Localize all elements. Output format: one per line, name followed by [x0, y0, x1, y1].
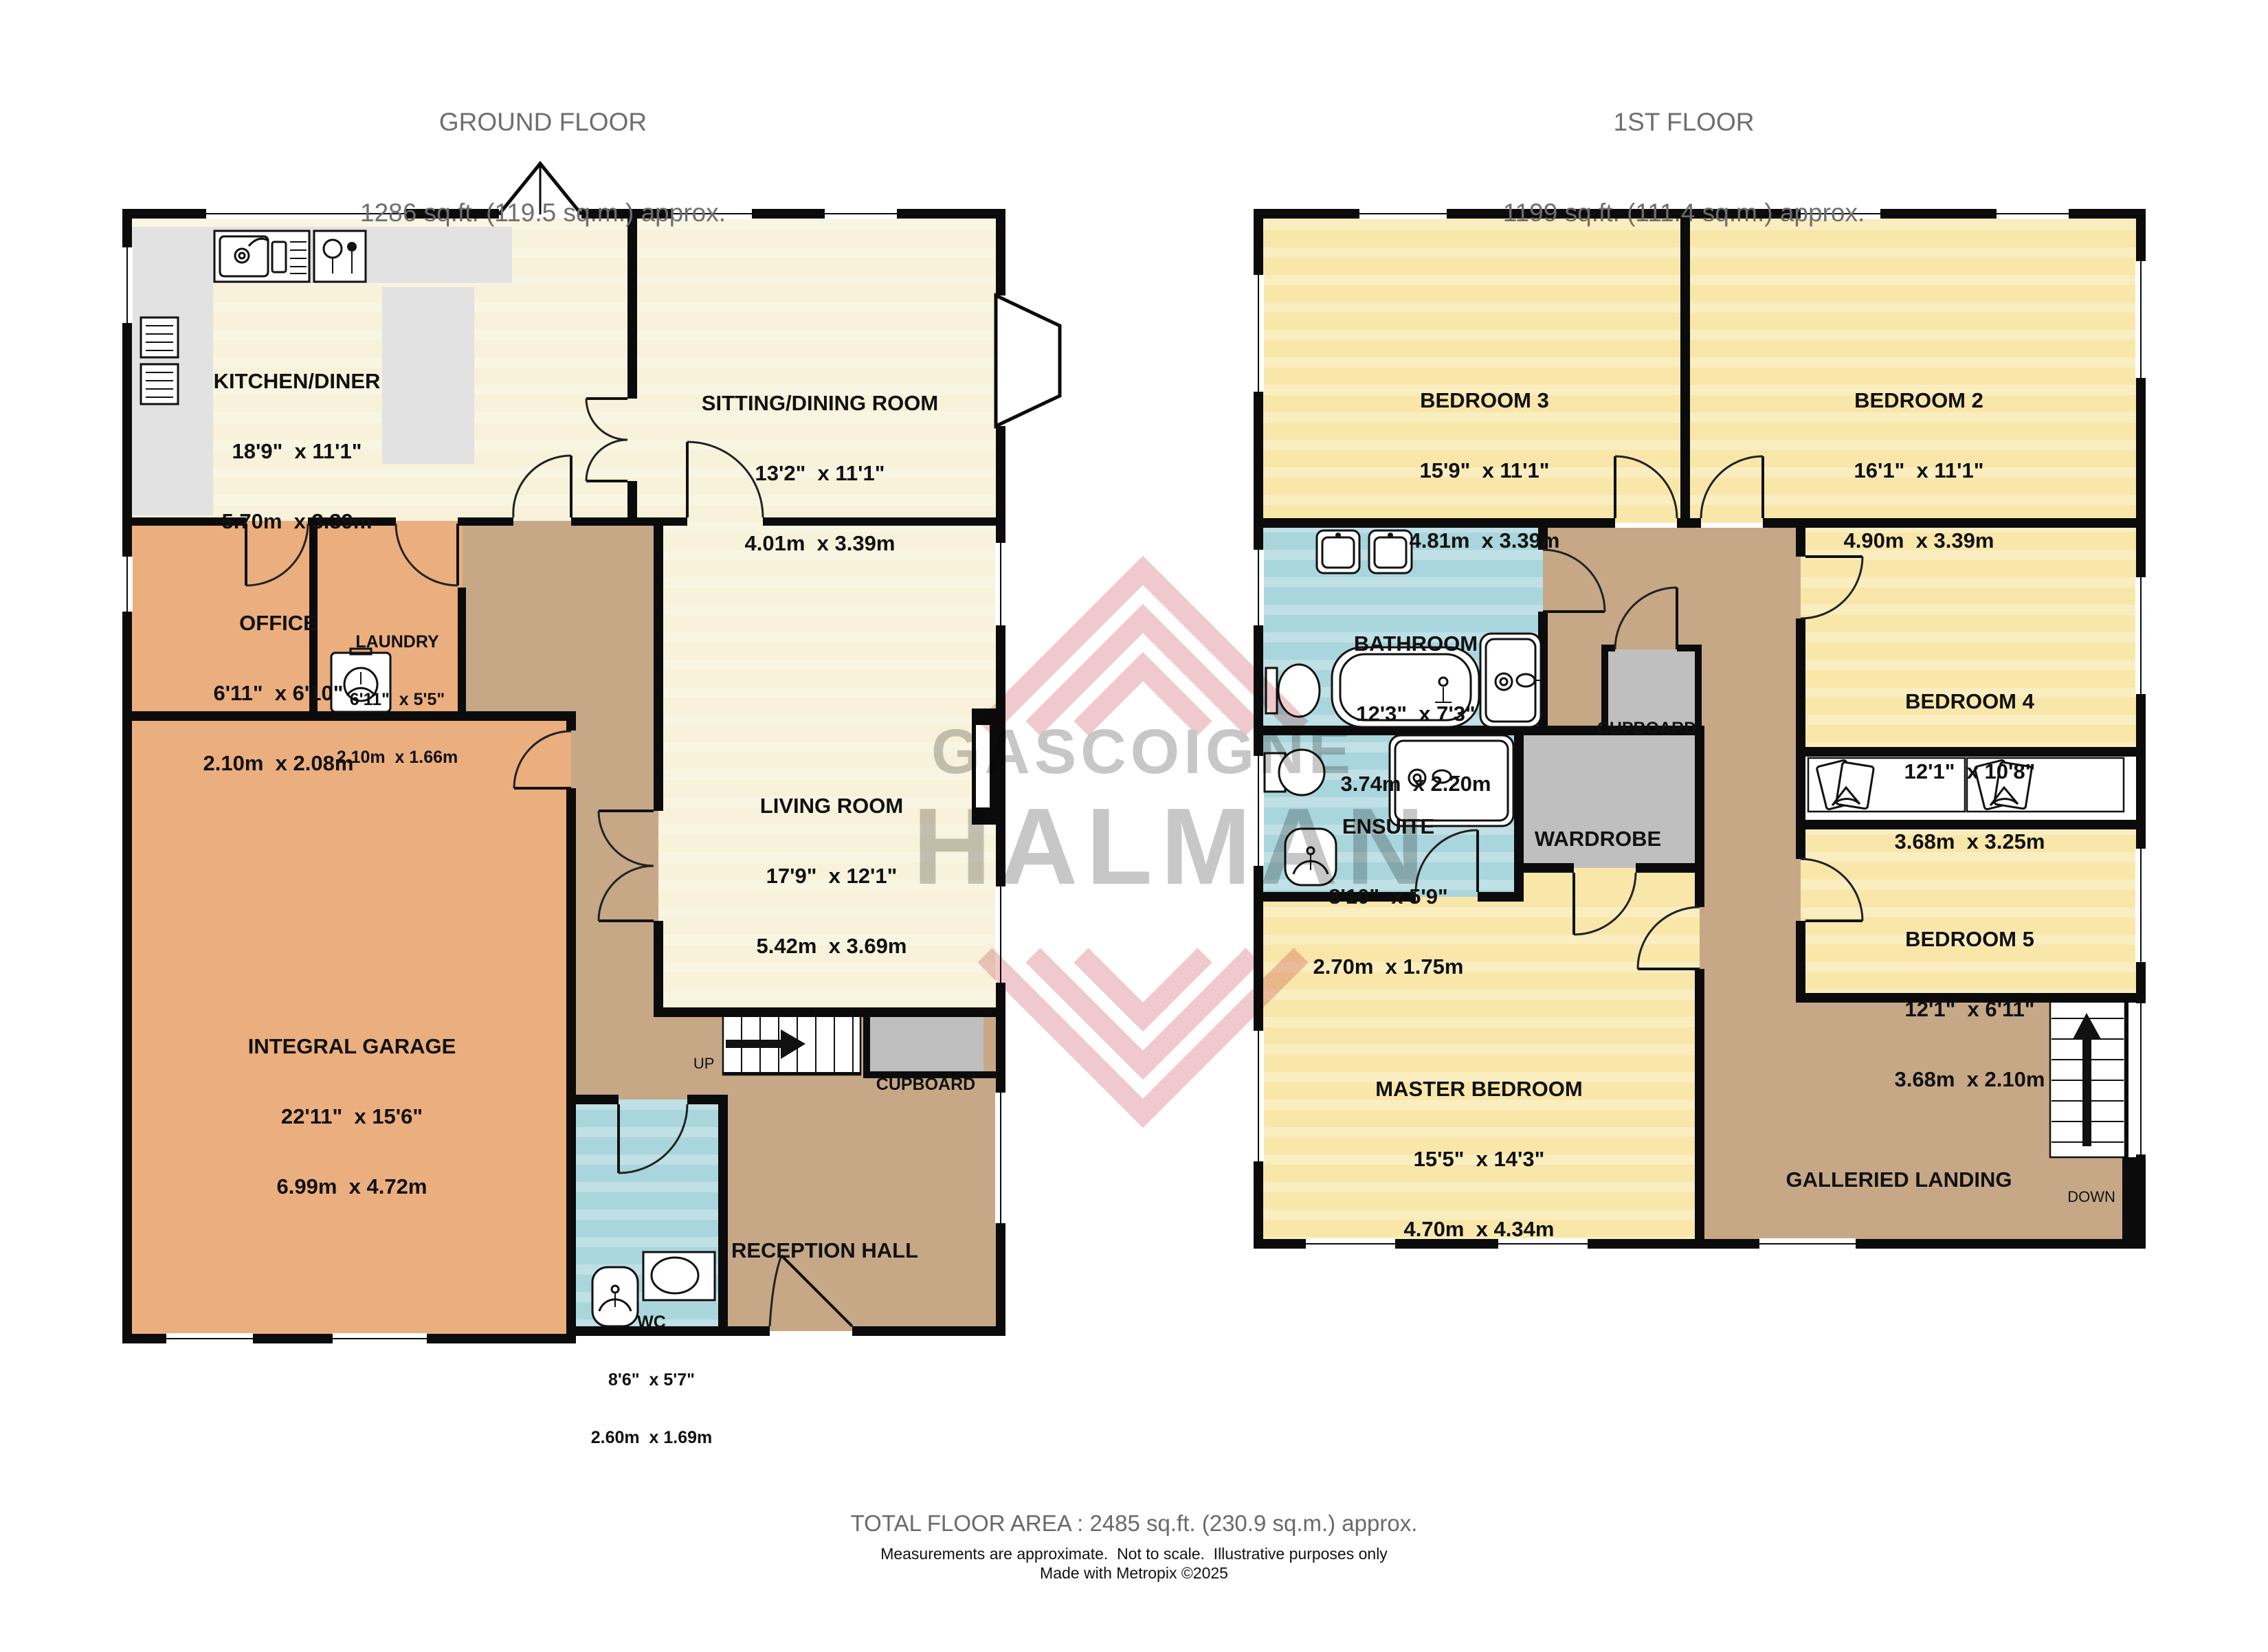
- room-name: BEDROOM 2: [1844, 389, 1994, 412]
- room-label-wardrobe: WARDROBE: [1535, 781, 1661, 874]
- room-dims-imperial: 12'3" x 7'3": [1341, 702, 1491, 726]
- room-dims-imperial: 12'1" x 10'8": [1895, 760, 2045, 783]
- bathroom-toilet-icon: [1266, 665, 1320, 717]
- room-dims-imperial: 15'5" x 14'3": [1375, 1148, 1582, 1171]
- room-label-bedroom-5: BEDROOM 5 12'1" x 6'11" 3.68m x 2.10m: [1895, 881, 2045, 1115]
- room-dims-metric: 2.60m x 1.69m: [591, 1428, 713, 1447]
- room-name: BEDROOM 5: [1895, 928, 2045, 951]
- room-dims-imperial: 22'11" x 15'6": [248, 1105, 456, 1128]
- desk-chair-icon: [1816, 760, 1874, 810]
- room-dims-metric: 4.70m x 4.34m: [1375, 1218, 1582, 1241]
- room-label-bedroom-3: BEDROOM 3 15'9" x 11'1" 4.81m x 3.39m: [1410, 342, 1560, 576]
- room-name: KITCHEN/DINER: [214, 370, 381, 393]
- room-dims-metric: 3.68m x 3.25m: [1895, 830, 2045, 853]
- room-name: BATHROOM: [1341, 632, 1491, 656]
- ground-floor-title: GROUND FLOOR: [360, 107, 726, 137]
- room-name: INTEGRAL GARAGE: [248, 1035, 456, 1058]
- up-text: UP: [693, 1055, 715, 1072]
- room-label-sitting-dining: SITTING/DINING ROOM 13'2" x 11'1" 4.01m …: [702, 345, 938, 579]
- disclaimer-note: Measurements are approximate. Not to sca…: [880, 1545, 1388, 1563]
- room-label-galleried-landing: GALLERIED LANDING: [1786, 1121, 2012, 1215]
- ground-floor-header: GROUND FLOOR 1286 sq.ft. (119.5 sq.m.) a…: [360, 47, 726, 258]
- room-dims-metric: 4.01m x 3.39m: [702, 532, 938, 555]
- room-name: BEDROOM 3: [1410, 389, 1560, 412]
- room-dims-metric: 3.68m x 2.10m: [1895, 1068, 2045, 1091]
- stairs-down-label: DOWN: [2059, 1172, 2115, 1205]
- room-name: MASTER BEDROOM: [1375, 1078, 1582, 1101]
- room-name: LIVING ROOM: [757, 794, 907, 818]
- room-dims-metric: 2.70m x 1.75m: [1313, 955, 1464, 979]
- room-label-cupboard-first: CUPBOARD: [1597, 680, 1696, 757]
- room-name: CUPBOARD: [1597, 719, 1696, 738]
- room-label-cupboard-ground: CUPBOARD: [876, 1036, 975, 1113]
- room-name: WARDROBE: [1535, 827, 1661, 851]
- first-floor-area: 1199 sq.ft. (111.4 sq.m.) approx.: [1503, 198, 1865, 228]
- bathroom-basin-icon: [1317, 531, 1359, 573]
- room-name: CUPBOARD: [876, 1075, 975, 1094]
- room-dims-metric: 5.42m x 3.69m: [757, 935, 907, 958]
- room-dims-metric: 2.10m x 2.08m: [203, 752, 354, 775]
- kitchen-island: [382, 287, 474, 464]
- stairs-up-label: UP: [685, 1039, 715, 1072]
- room-dims-metric: 4.90m x 3.39m: [1844, 529, 1994, 552]
- room-label-wc: WC 8'6" x 5'7" 2.60m x 1.69m: [591, 1274, 713, 1466]
- room-dims-imperial: 15'9" x 11'1": [1410, 459, 1560, 482]
- first-floor-header: 1ST FLOOR 1199 sq.ft. (111.4 sq.m.) appr…: [1503, 47, 1865, 258]
- room-name: WC: [591, 1313, 713, 1332]
- room-label-bedroom-4: BEDROOM 4 12'1" x 10'8" 3.68m x 3.25m: [1895, 643, 2045, 877]
- room-name: SITTING/DINING ROOM: [702, 392, 938, 415]
- first-floor-title: 1ST FLOOR: [1503, 107, 1865, 137]
- room-dims-metric: 2.10m x 1.66m: [337, 748, 458, 767]
- room-label-kitchen-diner: KITCHEN/DINER 18'9" x 11'1" 5.70m x 3.39…: [214, 323, 381, 557]
- room-name: ENSUITE: [1313, 815, 1464, 838]
- kitchen-sink-icon: [214, 231, 309, 282]
- total-floor-area: TOTAL FLOOR AREA : 2485 sq.ft. (230.9 sq…: [851, 1510, 1418, 1537]
- ground-floor-area: 1286 sq.ft. (119.5 sq.m.) approx.: [360, 198, 726, 228]
- room-dims-imperial: 16'1" x 11'1": [1844, 459, 1994, 482]
- room-dims-metric: 5.70m x 3.39m: [214, 510, 381, 533]
- room-dims-imperial: 8'10" x 5'9": [1313, 885, 1464, 908]
- room-label-ensuite: ENSUITE 8'10" x 5'9" 2.70m x 1.75m: [1313, 768, 1464, 1002]
- room-label-laundry: LAUNDRY 6'11" x 5'5" 2.10m x 1.66m: [337, 594, 458, 786]
- room-name: GALLERIED LANDING: [1786, 1168, 2012, 1192]
- room-label-master-bedroom: MASTER BEDROOM 15'5" x 14'3" 4.70m x 4.3…: [1375, 1031, 1582, 1264]
- room-dims-imperial: 17'9" x 12'1": [757, 864, 907, 888]
- room-dims-imperial: 6'11" x 6'10": [203, 682, 354, 705]
- room-label-living-room: LIVING ROOM 17'9" x 12'1" 5.42m x 3.69m: [757, 748, 907, 981]
- down-text: DOWN: [2067, 1188, 2115, 1205]
- room-label-integral-garage: INTEGRAL GARAGE 22'11" x 15'6" 6.99m x 4…: [248, 988, 456, 1222]
- room-name: LAUNDRY: [337, 632, 458, 651]
- room-label-bedroom-2: BEDROOM 2 16'1" x 11'1" 4.90m x 3.39m: [1844, 342, 1994, 576]
- room-dims-imperial: 6'11" x 5'5": [337, 690, 458, 709]
- bathroom-basin-icon: [1369, 531, 1412, 573]
- room-name: BEDROOM 4: [1895, 690, 2045, 713]
- room-dims-metric: 4.81m x 3.39m: [1410, 529, 1560, 552]
- room-name: RECEPTION HALL: [731, 1239, 918, 1262]
- room-dims-imperial: 12'1" x 6'11": [1895, 998, 2045, 1021]
- room-label-office: OFFICE 6'11" x 6'10" 2.10m x 2.08m: [203, 565, 354, 799]
- floorplan-page: GASCOIGNE HALMAN GROUND FLOOR 1286 sq.ft…: [0, 0, 2268, 1652]
- metropix-credit: Made with Metropix ©2025: [1040, 1564, 1228, 1583]
- dishwasher-icon: [314, 231, 366, 282]
- room-dims-imperial: 13'2" x 11'1": [702, 462, 938, 485]
- room-dims-imperial: 18'9" x 11'1": [214, 440, 381, 463]
- room-dims-imperial: 8'6" x 5'7": [591, 1370, 713, 1389]
- room-dims-metric: 6.99m x 4.72m: [248, 1175, 456, 1198]
- bay-window: [996, 295, 1060, 426]
- room-name: OFFICE: [203, 612, 354, 635]
- room-label-reception-hall: RECEPTION HALL: [731, 1192, 918, 1286]
